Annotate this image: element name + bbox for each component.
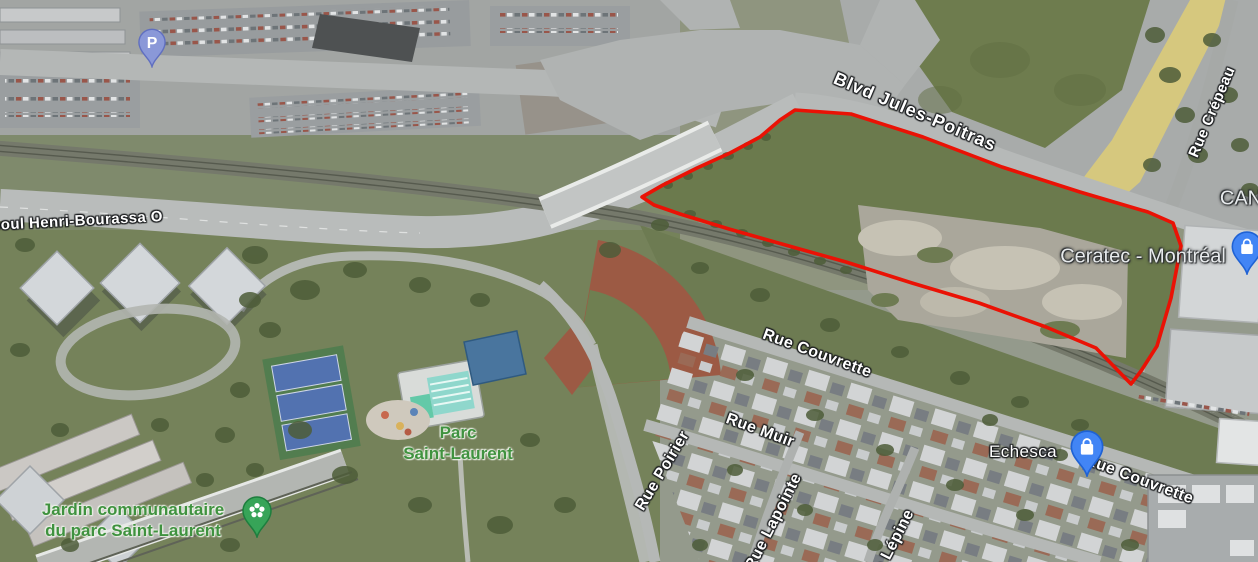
place-label-ceratec[interactable]: Ceratec - Montréal <box>1060 246 1226 269</box>
jardin-label-line2: du parc Saint-Laurent <box>42 520 224 541</box>
parc-label-line1: Parc <box>403 422 513 443</box>
parking-pin[interactable]: P <box>138 28 166 73</box>
ceratec-pin[interactable] <box>1231 231 1258 280</box>
place-label-can-partial[interactable]: CAN <box>1220 188 1258 211</box>
jardin-pin-body <box>243 497 271 537</box>
place-label-parc-saint-laurent[interactable]: Parc Saint-Laurent <box>403 422 513 464</box>
parking-icon: P <box>147 35 158 52</box>
jardin-pin[interactable] <box>242 496 272 543</box>
echesca-pin[interactable] <box>1070 430 1104 482</box>
jardin-label-line1: Jardin communautaire <box>42 499 224 520</box>
satellite-map[interactable]: Blvd Jules-Poitras Rue Crépeau boul Henr… <box>0 0 1258 562</box>
parc-label-line2: Saint-Laurent <box>403 443 513 464</box>
place-label-jardin-communautaire[interactable]: Jardin communautaire du parc Saint-Laure… <box>42 499 224 541</box>
place-label-echesca[interactable]: Echesca <box>989 442 1057 462</box>
